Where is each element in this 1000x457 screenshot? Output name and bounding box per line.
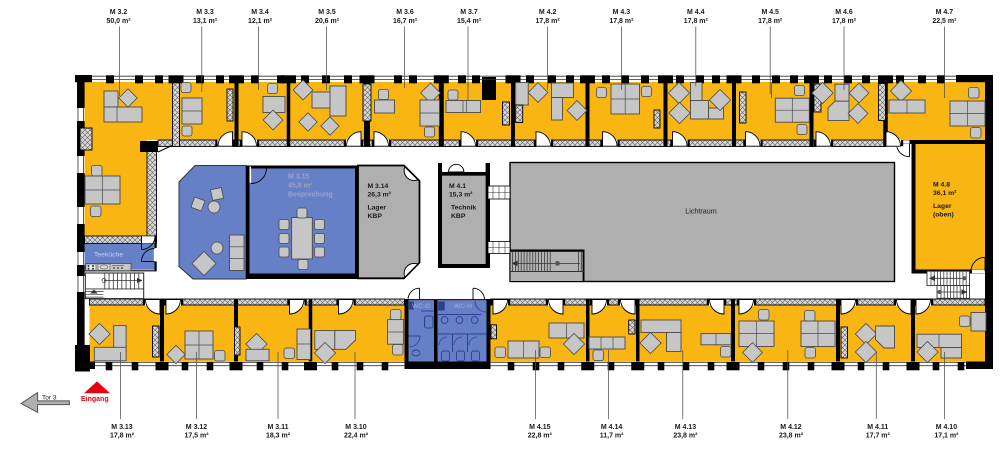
svg-text:M 3.4: M 3.4 — [251, 9, 269, 16]
svg-text:13,1 m²: 13,1 m² — [193, 18, 218, 25]
svg-text:M 4.10: M 4.10 — [936, 424, 958, 431]
svg-text:17,7 m²: 17,7 m² — [866, 433, 891, 440]
svg-text:20,6 m²: 20,6 m² — [315, 18, 340, 25]
svg-text:17,8 m²: 17,8 m² — [110, 433, 135, 440]
svg-text:M 3.12: M 3.12 — [186, 424, 208, 431]
svg-text:17,8 m²: 17,8 m² — [832, 18, 857, 25]
svg-text:M 4.11: M 4.11 — [867, 424, 888, 431]
svg-text:M 4.2: M 4.2 — [539, 9, 557, 16]
svg-text:26,3 m²: 26,3 m² — [368, 192, 392, 199]
svg-text:17,8 m²: 17,8 m² — [609, 18, 634, 25]
svg-text:16,7 m²: 16,7 m² — [393, 18, 418, 25]
svg-text:WC-D: WC-D — [412, 303, 430, 310]
svg-text:17,8 m²: 17,8 m² — [536, 18, 561, 25]
svg-text:M 4.6: M 4.6 — [835, 9, 853, 16]
svg-text:M 4.8: M 4.8 — [933, 182, 950, 189]
svg-text:17,8 m²: 17,8 m² — [684, 18, 709, 25]
svg-text:KBP: KBP — [368, 213, 383, 220]
svg-text:M 4.5: M 4.5 — [761, 9, 779, 16]
svg-text:M 4.15: M 4.15 — [529, 424, 551, 431]
svg-text:M 3.7: M 3.7 — [460, 9, 478, 16]
svg-text:12,1 m²: 12,1 m² — [248, 18, 273, 25]
svg-text:M 4.14: M 4.14 — [601, 424, 623, 431]
svg-text:Lager: Lager — [368, 205, 387, 212]
svg-text:M 3.3: M 3.3 — [196, 9, 214, 16]
svg-text:50,0 m²: 50,0 m² — [106, 18, 131, 25]
svg-text:22,4 m²: 22,4 m² — [344, 433, 369, 440]
svg-text:M 4.3: M 4.3 — [613, 9, 631, 16]
svg-text:Teeküche: Teeküche — [94, 251, 123, 258]
svg-text:Lichtraum: Lichtraum — [685, 207, 717, 216]
svg-text:36,1 m²: 36,1 m² — [933, 190, 957, 197]
svg-text:18,3 m²: 18,3 m² — [266, 433, 291, 440]
svg-text:M 3.14: M 3.14 — [368, 183, 389, 190]
svg-text:M 4.13: M 4.13 — [675, 424, 697, 431]
svg-text:M 4.4: M 4.4 — [687, 9, 705, 16]
svg-text:17,5 m²: 17,5 m² — [184, 433, 209, 440]
svg-text:Eingang: Eingang — [81, 396, 109, 403]
svg-text:M 3.2: M 3.2 — [110, 9, 128, 16]
svg-text:WC-H: WC-H — [454, 303, 472, 310]
svg-text:M 3.13: M 3.13 — [111, 424, 133, 431]
svg-text:M 3.11: M 3.11 — [267, 424, 288, 431]
svg-text:KBP: KBP — [451, 213, 466, 220]
svg-text:M 4.12: M 4.12 — [780, 424, 802, 431]
svg-text:M 3.5: M 3.5 — [318, 9, 336, 16]
svg-text:15,4 m²: 15,4 m² — [457, 18, 482, 25]
svg-text:23,8 m²: 23,8 m² — [779, 433, 804, 440]
svg-text:17,8 m²: 17,8 m² — [758, 18, 783, 25]
svg-text:M 3.10: M 3.10 — [345, 424, 367, 431]
svg-text:Lager: Lager — [933, 203, 952, 210]
svg-text:15,3 m²: 15,3 m² — [449, 192, 473, 199]
svg-text:17,1 m²: 17,1 m² — [934, 433, 959, 440]
svg-text:Besprechung: Besprechung — [288, 191, 333, 198]
svg-text:11,7 m²: 11,7 m² — [600, 433, 624, 440]
svg-text:Technik: Technik — [451, 205, 476, 212]
svg-text:22,5 m²: 22,5 m² — [932, 18, 957, 25]
svg-text:M 3.6: M 3.6 — [396, 9, 414, 16]
svg-text:M 3.15: M 3.15 — [288, 174, 310, 181]
svg-text:M 4.1: M 4.1 — [449, 183, 466, 190]
svg-text:M 4.7: M 4.7 — [936, 9, 954, 16]
svg-text:Tor 3: Tor 3 — [42, 395, 57, 402]
svg-text:45,8 m²: 45,8 m² — [288, 182, 313, 189]
svg-text:(oben): (oben) — [933, 212, 954, 219]
svg-text:22,8 m²: 22,8 m² — [528, 433, 553, 440]
svg-text:23,8 m²: 23,8 m² — [673, 433, 698, 440]
